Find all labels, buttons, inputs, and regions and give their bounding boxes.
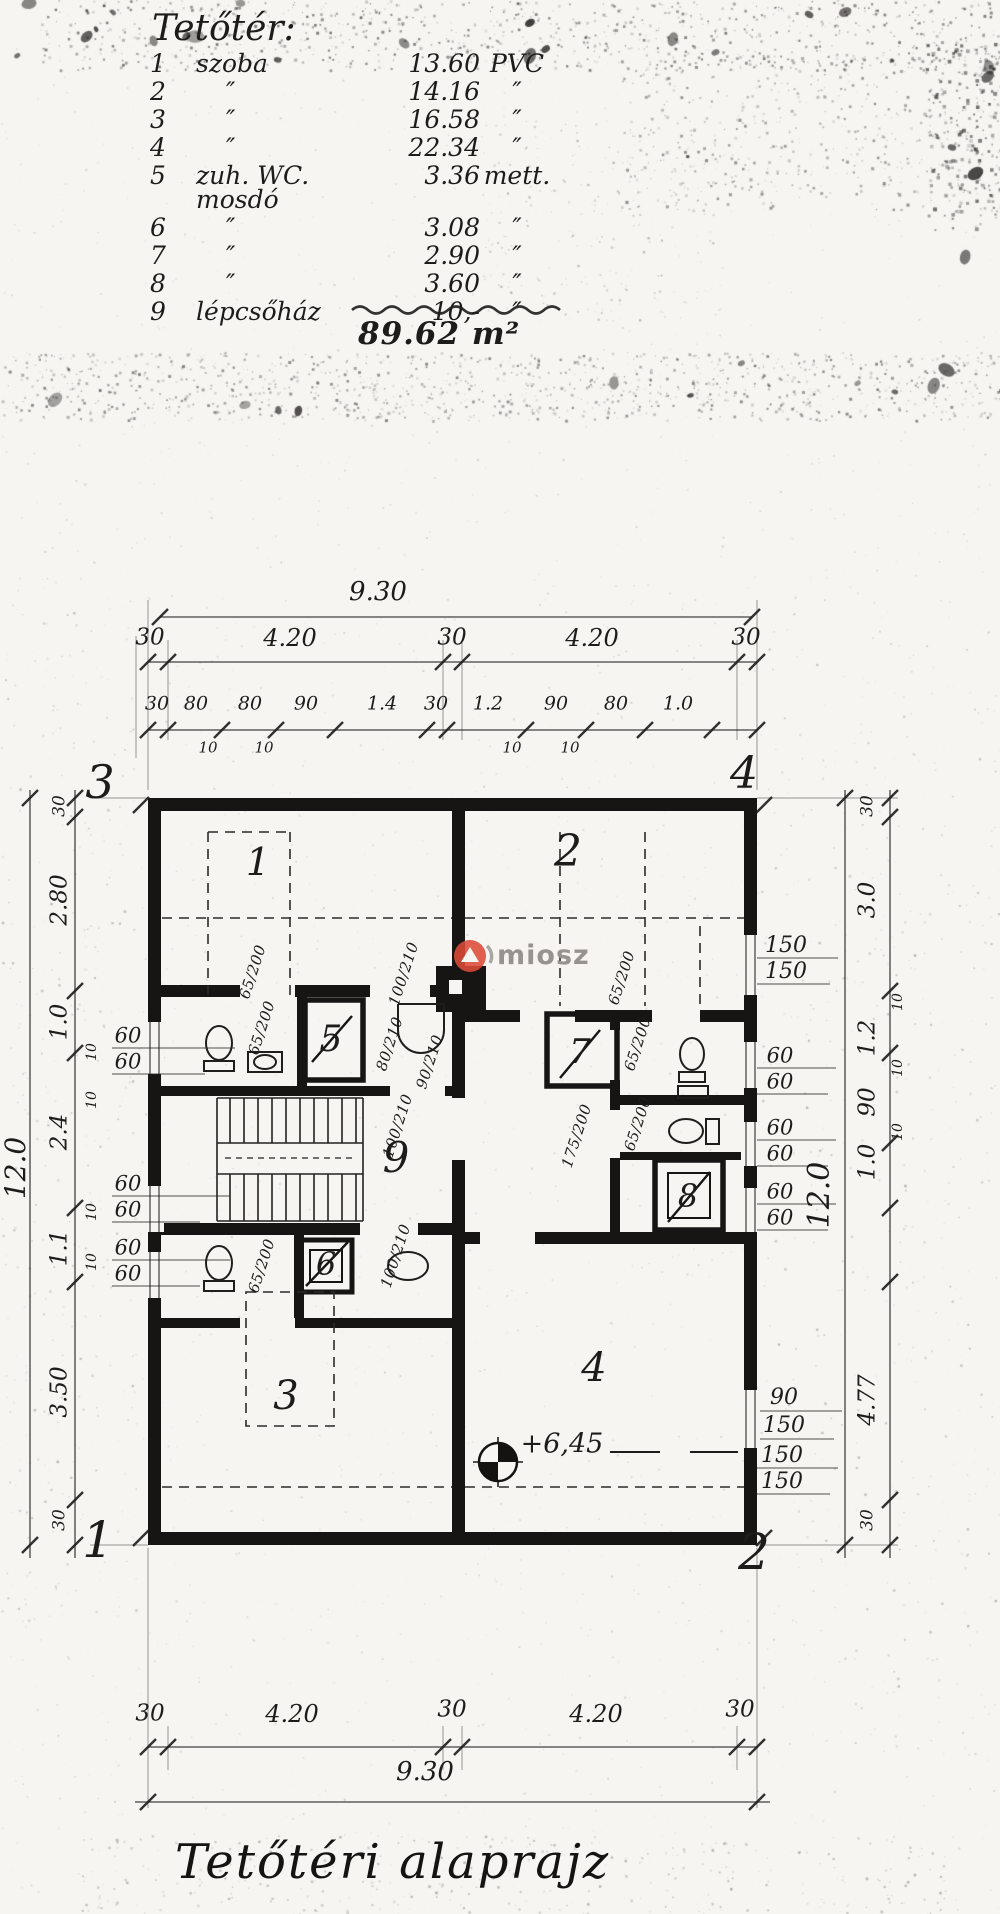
- window-label: 60: [115, 1200, 142, 1221]
- room-label-1: 1: [246, 843, 270, 881]
- dim-sub-label: 10: [560, 741, 579, 756]
- row-name: szoba: [196, 52, 384, 76]
- room-label-5: 5: [320, 1022, 343, 1058]
- row-floor: ″: [480, 272, 554, 296]
- dim-label: 90: [294, 695, 318, 714]
- row-floor: ″: [480, 136, 554, 160]
- dim-label: 30: [437, 1699, 466, 1722]
- total-area: 89.62 m²: [358, 316, 520, 352]
- row-floor: mett.: [480, 164, 554, 212]
- dim-top-overall: 9.30: [349, 579, 407, 605]
- row-floor: ″: [480, 244, 554, 268]
- dim-label: 30: [731, 627, 760, 650]
- row-area: 14.16: [384, 80, 480, 104]
- room-label-7: 7: [569, 1035, 591, 1069]
- row-floor: ″: [480, 80, 554, 104]
- window-label: 60: [767, 1208, 794, 1229]
- dim-bottom-overall: 9.30: [396, 1759, 454, 1785]
- window-label: 90: [770, 1387, 798, 1409]
- dim-sub-label: 10: [891, 993, 905, 1011]
- dim-label: 30: [135, 1703, 164, 1726]
- row-name: lépcsőház: [196, 300, 384, 324]
- level-marker-icon: [473, 1437, 738, 1487]
- dim-right-overall: 12.0: [805, 1162, 835, 1229]
- dim-sub-label: 10: [891, 1059, 905, 1077]
- row-num: 9: [150, 300, 196, 324]
- row-num: 7: [150, 244, 196, 268]
- dim-label: 4.20: [569, 1702, 622, 1726]
- dim-sub-label: 10: [502, 741, 521, 756]
- row-num: 5: [150, 164, 196, 212]
- room-label-6: 6: [316, 1248, 336, 1280]
- dim-sub-label: 10: [85, 1203, 99, 1221]
- row-num: 2: [150, 80, 196, 104]
- corner-marker-1: 1: [82, 1515, 114, 1565]
- row-name: ″: [196, 272, 384, 296]
- dim-label: 30: [860, 795, 877, 817]
- corner-marker-4: 4: [730, 752, 758, 796]
- room-label-2: 2: [554, 830, 582, 874]
- row-name: ″: [196, 216, 384, 240]
- dim-label: 30: [52, 795, 69, 817]
- row-area: 3.60: [384, 272, 480, 296]
- row-floor: PVC: [480, 52, 554, 76]
- schedule-title: Tetőtér:: [152, 8, 296, 49]
- window-label: 60: [115, 1238, 142, 1259]
- dim-left-overall: 12.0: [2, 1137, 30, 1199]
- dim-label: 3.0: [857, 882, 880, 919]
- window-label: 60: [115, 1026, 142, 1047]
- dim-label: 2.4: [49, 1114, 72, 1151]
- dim-label: 4.20: [565, 626, 618, 650]
- room-label-3: 3: [273, 1376, 298, 1416]
- dim-label: 4.20: [265, 1702, 318, 1726]
- dim-label: 1.1: [49, 1230, 72, 1267]
- row-area: 13.60: [384, 52, 480, 76]
- dim-label: 4.20: [263, 626, 316, 650]
- window-label: 60: [767, 1182, 794, 1203]
- row-area: 22.34: [384, 136, 480, 160]
- window-label: 150: [761, 1471, 803, 1493]
- row-area: 16.58: [384, 108, 480, 132]
- dim-sub-label: 10: [85, 1091, 99, 1109]
- row-name: ″: [196, 80, 384, 104]
- level-value: +6,45: [521, 1431, 604, 1458]
- row-name: ″: [196, 244, 384, 268]
- dim-label: 30: [725, 1699, 754, 1722]
- window-label: 150: [765, 961, 807, 983]
- dim-label: 1.2: [857, 1020, 880, 1057]
- dim-sub-label: 10: [85, 1253, 99, 1271]
- row-name: zuh. WC. mosdó: [196, 164, 384, 212]
- room-schedule-table: 1szoba13.60PVC 2″14.16″ 3″16.58″ 4″22.34…: [150, 52, 554, 324]
- dim-label: 1.4: [367, 695, 397, 714]
- corner-marker-2: 2: [738, 1527, 770, 1577]
- dim-label: 2.80: [49, 874, 72, 925]
- dim-sub-label: 10: [85, 1043, 99, 1061]
- window-label: 60: [767, 1046, 794, 1067]
- dim-label: 30: [135, 627, 164, 650]
- dim-label: 30: [860, 1509, 877, 1531]
- row-area: 3.08: [384, 216, 480, 240]
- window-label: 60: [767, 1118, 794, 1139]
- room-label-4: 4: [581, 1348, 606, 1388]
- room-label-8: 8: [678, 1180, 698, 1212]
- window-label: 60: [115, 1174, 142, 1195]
- dim-sub-label: 10: [891, 1123, 905, 1141]
- scanned-floor-plan-page: Tetőtér: 1szoba13.60PVC 2″14.16″ 3″16.58…: [0, 0, 1000, 1914]
- window-label: 150: [763, 1415, 805, 1437]
- row-num: 6: [150, 216, 196, 240]
- row-num: 4: [150, 136, 196, 160]
- drawing-title: Tetőtéri alaprajz: [175, 1834, 610, 1890]
- dim-label: 3.50: [49, 1366, 72, 1417]
- row-area: 3.36: [384, 164, 480, 212]
- window-label: 60: [115, 1052, 142, 1073]
- dim-label: 30: [437, 627, 466, 650]
- window-label: 150: [765, 935, 807, 957]
- dim-label: 30: [424, 695, 448, 714]
- window-label: 60: [767, 1144, 794, 1165]
- row-name: ″: [196, 136, 384, 160]
- dim-label: 1.0: [663, 695, 693, 714]
- row-name: ″: [196, 108, 384, 132]
- dim-label: 1.0: [49, 1004, 72, 1041]
- dim-label: 30: [145, 695, 169, 714]
- row-floor: ″: [480, 108, 554, 132]
- dim-sub-label: 10: [198, 741, 217, 756]
- dim-label: 4.77: [857, 1374, 880, 1425]
- dim-label: 1.0: [857, 1144, 880, 1181]
- dim-label: 90: [857, 1087, 880, 1116]
- watermark-text: miosz: [497, 940, 590, 971]
- row-num: 1: [150, 52, 196, 76]
- window-label: 60: [115, 1264, 142, 1285]
- dim-label: 1.2: [473, 695, 503, 714]
- row-floor: ″: [480, 216, 554, 240]
- row-num: 8: [150, 272, 196, 296]
- row-area: 2.90: [384, 244, 480, 268]
- window-label: 150: [761, 1445, 803, 1467]
- dim-label: 80: [184, 695, 208, 714]
- dim-label: 90: [544, 695, 568, 714]
- row-num: 3: [150, 108, 196, 132]
- dim-label: 80: [238, 695, 262, 714]
- dim-label: 80: [604, 695, 628, 714]
- dim-sub-label: 10: [254, 741, 273, 756]
- window-label: 60: [767, 1072, 794, 1093]
- corner-marker-3: 3: [85, 759, 114, 805]
- dim-label: 30: [52, 1509, 69, 1531]
